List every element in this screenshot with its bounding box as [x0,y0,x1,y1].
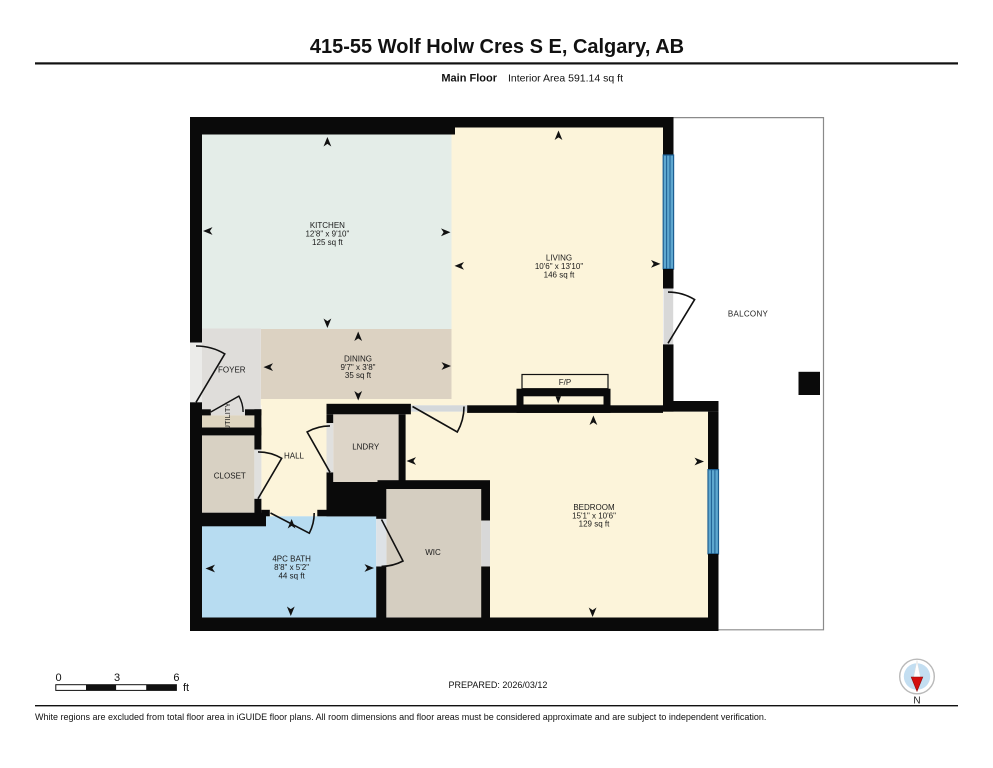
svg-text:F/P: F/P [559,378,571,387]
svg-text:LNDRY: LNDRY [352,443,380,452]
svg-text:White regions are excluded fro: White regions are excluded from total fl… [35,712,766,722]
svg-text:UTILITY: UTILITY [223,403,232,431]
svg-text:146 sq ft: 146 sq ft [544,270,575,279]
svg-text:35 sq ft: 35 sq ft [345,371,372,380]
svg-text:6: 6 [173,672,179,684]
svg-text:Main Floor: Main Floor [441,73,497,85]
svg-text:HALL: HALL [284,451,305,460]
svg-text:129 sq ft: 129 sq ft [579,520,610,529]
svg-text:BALCONY: BALCONY [728,310,769,319]
svg-text:PREPARED: 2026/03/12: PREPARED: 2026/03/12 [449,680,548,690]
svg-text:FOYER: FOYER [218,366,246,375]
svg-text:CLOSET: CLOSET [214,471,246,480]
svg-text:44 sq ft: 44 sq ft [278,572,305,581]
svg-text:415-55 Wolf Holw Cres S E, Cal: 415-55 Wolf Holw Cres S E, Calgary, AB [310,36,684,58]
svg-text:N: N [913,696,920,707]
svg-text:3: 3 [114,672,120,684]
svg-text:WIC: WIC [425,548,441,557]
svg-text:Interior Area 591.14 sq ft: Interior Area 591.14 sq ft [508,73,623,85]
svg-text:0: 0 [55,672,61,684]
svg-text:125 sq ft: 125 sq ft [312,238,343,247]
svg-text:ft: ft [183,682,189,694]
